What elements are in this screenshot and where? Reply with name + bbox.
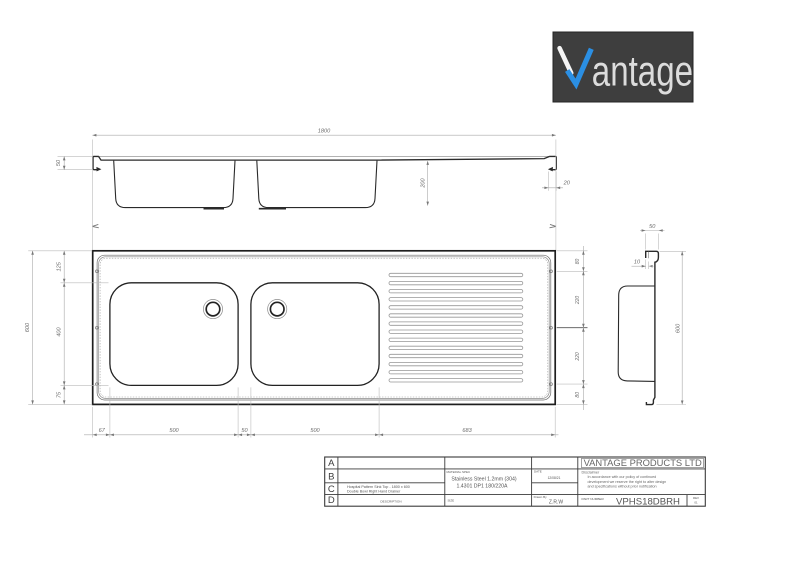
svg-text:683: 683 [462,428,472,434]
svg-text:50: 50 [56,159,62,166]
svg-text:20: 20 [563,181,571,187]
svg-text:75: 75 [57,391,63,398]
svg-text:400: 400 [57,326,63,336]
svg-text:600: 600 [25,322,31,332]
svg-text:SIZE: SIZE [448,498,455,502]
svg-text:220: 220 [575,296,581,306]
svg-text:125: 125 [57,261,63,271]
svg-text:development we reserve the rig: development we reserve the right to alte… [588,480,667,484]
svg-text:Z.R.W: Z.R.W [549,500,563,506]
svg-text:Drawn By: Drawn By [534,495,548,499]
svg-text:A: A [328,458,335,469]
svg-text:Double Bowl Right Hand Drainer: Double Bowl Right Hand Drainer [347,490,401,494]
svg-text:VANTAGE PRODUCTS LTD: VANTAGE PRODUCTS LTD [584,457,702,468]
svg-text:1800: 1800 [318,129,331,135]
svg-text:80: 80 [575,259,581,265]
svg-text:01: 01 [694,500,698,504]
svg-text:500: 500 [169,428,179,434]
svg-text:PART NUMBER: PART NUMBER [582,497,605,501]
svg-text:50: 50 [241,428,248,434]
svg-text:antage: antage [592,47,693,95]
svg-text:220: 220 [575,352,581,362]
svg-text:REV: REV [693,496,699,500]
svg-text:In accordance with our policy: In accordance with our policy of continu… [588,475,657,479]
svg-text:1.4301 DP1 180/220A: 1.4301 DP1 180/220A [456,483,508,489]
svg-text:C: C [328,484,335,495]
svg-text:600: 600 [675,323,681,333]
svg-text:Disclaimer: Disclaimer [582,470,600,474]
svg-text:D: D [328,495,335,506]
svg-text:Hospital Pattern Sink Top - 18: Hospital Pattern Sink Top - 1800 x 600 [347,485,410,489]
svg-text:200: 200 [421,177,427,188]
svg-text:and specifications without pri: and specifications without prior notific… [588,485,657,489]
svg-text:MATERIAL SPEC: MATERIAL SPEC [447,470,472,474]
svg-text:50: 50 [649,224,656,230]
svg-text:Stainless Steel 1.2mm (304): Stainless Steel 1.2mm (304) [451,477,516,483]
svg-text:DESCRIPTION: DESCRIPTION [380,499,401,503]
svg-text:500: 500 [310,428,320,434]
svg-text:12/08/21: 12/08/21 [548,476,561,480]
svg-text:67: 67 [99,428,106,434]
svg-text:DATE: DATE [534,470,542,474]
svg-text:VPHS18DBRH: VPHS18DBRH [616,496,680,507]
svg-text:B: B [328,471,334,482]
svg-text:80: 80 [575,392,581,398]
svg-text:10: 10 [634,260,641,266]
